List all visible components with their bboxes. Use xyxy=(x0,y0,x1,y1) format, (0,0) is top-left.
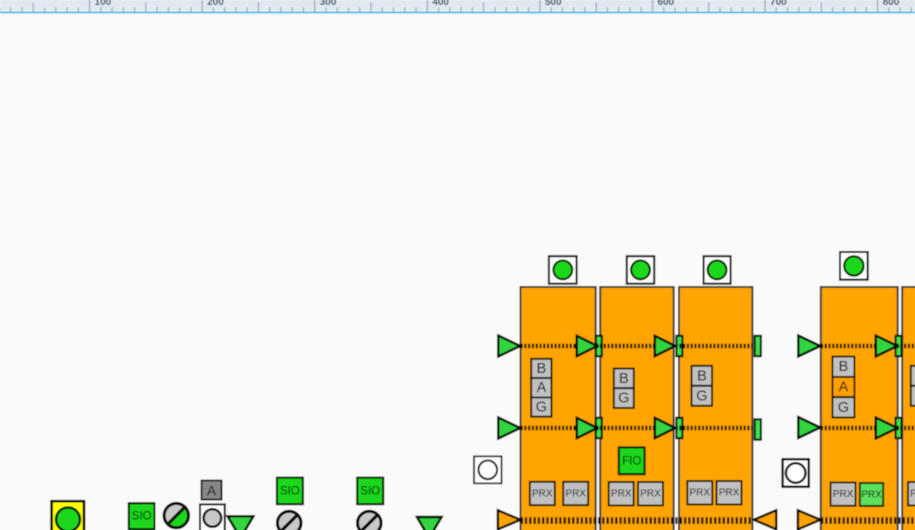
svg-text:500: 500 xyxy=(545,0,562,8)
svg-text:SIO: SIO xyxy=(280,485,300,497)
svg-text:A: A xyxy=(839,380,849,396)
svg-text:A: A xyxy=(207,483,217,499)
svg-text:PRX: PRX xyxy=(611,489,632,500)
svg-text:300: 300 xyxy=(320,0,337,8)
svg-text:700: 700 xyxy=(770,0,787,8)
svg-text:600: 600 xyxy=(657,0,674,8)
svg-text:B: B xyxy=(537,361,547,377)
svg-text:PRX: PRX xyxy=(690,488,711,499)
svg-text:SIO: SIO xyxy=(132,511,152,523)
svg-text:800: 800 xyxy=(883,0,900,8)
svg-text:PRX: PRX xyxy=(532,489,553,500)
svg-text:PRX: PRX xyxy=(640,489,661,500)
svg-text:G: G xyxy=(696,388,707,404)
svg-text:200: 200 xyxy=(207,0,224,8)
svg-text:PRX: PRX xyxy=(565,489,586,500)
svg-text:PRX: PRX xyxy=(861,490,882,501)
svg-text:B: B xyxy=(697,368,707,384)
svg-text:PRX: PRX xyxy=(910,489,915,500)
svg-text:A: A xyxy=(537,380,547,396)
svg-text:G: G xyxy=(536,400,547,416)
svg-text:100: 100 xyxy=(95,0,112,8)
svg-text:G: G xyxy=(838,400,849,416)
svg-text:G: G xyxy=(618,391,629,407)
svg-text:PRX: PRX xyxy=(833,489,854,500)
svg-text:FIO: FIO xyxy=(622,455,641,467)
svg-text:SIO: SIO xyxy=(360,485,380,497)
svg-text:B: B xyxy=(619,371,629,387)
svg-text:B: B xyxy=(839,359,849,375)
svg-text:PRX: PRX xyxy=(719,488,740,499)
svg-text:400: 400 xyxy=(432,0,449,8)
